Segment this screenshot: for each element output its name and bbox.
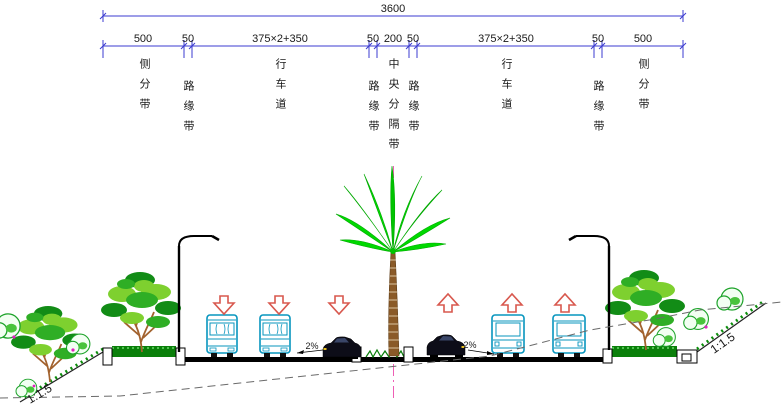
shrub	[653, 328, 675, 347]
bus-icon	[260, 315, 290, 357]
dim-seg-2: 375×2+350	[252, 33, 308, 45]
cross-slope-label-right: 2%	[463, 340, 476, 350]
shrub	[717, 288, 743, 310]
dim-seg-4: 200	[384, 33, 402, 45]
tree-left-verge	[101, 272, 181, 352]
cross-slope-label-left: 2%	[305, 341, 318, 351]
dim-seg-6: 375×2+350	[478, 33, 534, 45]
dim-seg-1: 50	[182, 33, 194, 45]
bus-icon	[207, 315, 237, 357]
traffic-arrow-up-icon	[502, 294, 522, 312]
car-icon	[323, 337, 361, 359]
dim-seg-8: 500	[634, 33, 652, 45]
label-curb-strip-4: 路缘带	[591, 80, 605, 140]
label-side-strip-left: 侧分带	[137, 58, 151, 118]
traffic-arrow-down-icon	[214, 296, 234, 314]
car-icon	[427, 335, 465, 357]
label-curb-strip-2: 路缘带	[366, 80, 380, 140]
palm-fronds	[336, 166, 450, 254]
cross-slope-left: 2%	[297, 341, 323, 354]
label-carriageway-right: 行车道	[499, 58, 513, 118]
drainage-ditch	[677, 350, 697, 363]
label-curb-strip-3: 路缘带	[406, 80, 420, 140]
label-central-median: 中央分隔带	[386, 58, 400, 158]
bus-icon	[553, 315, 585, 357]
label-side-strip-right: 侧分带	[636, 58, 650, 118]
traffic-arrow-down-icon	[269, 296, 289, 314]
dim-seg-0: 500	[134, 33, 152, 45]
road-cross-section-diagram: 3600 500 50 375×2+350 50 200 50 375×2+35…	[0, 0, 782, 414]
slope-label-right: 1:1.5	[708, 329, 738, 356]
road-surface	[185, 357, 603, 362]
dim-seg-7: 50	[592, 33, 604, 45]
dimension-values: 3600 500 50 375×2+350 50 200 50 375×2+35…	[134, 3, 652, 45]
shrub	[0, 314, 20, 338]
right-verge	[612, 346, 677, 357]
palm-tree	[336, 166, 450, 356]
left-verge	[112, 346, 176, 357]
dim-seg-3: 50	[367, 33, 379, 45]
cross-slope-right: 2%	[463, 340, 494, 355]
bus-icon	[492, 315, 524, 357]
traffic-arrow-down-icon	[329, 296, 349, 314]
traffic-arrow-up-icon	[438, 294, 458, 312]
dim-seg-5: 50	[407, 33, 419, 45]
traffic-arrow-up-icon	[555, 294, 575, 312]
label-curb-strip-1: 路缘带	[181, 80, 195, 140]
label-carriageway-left: 行车道	[273, 58, 287, 118]
dim-total: 3600	[381, 3, 405, 15]
